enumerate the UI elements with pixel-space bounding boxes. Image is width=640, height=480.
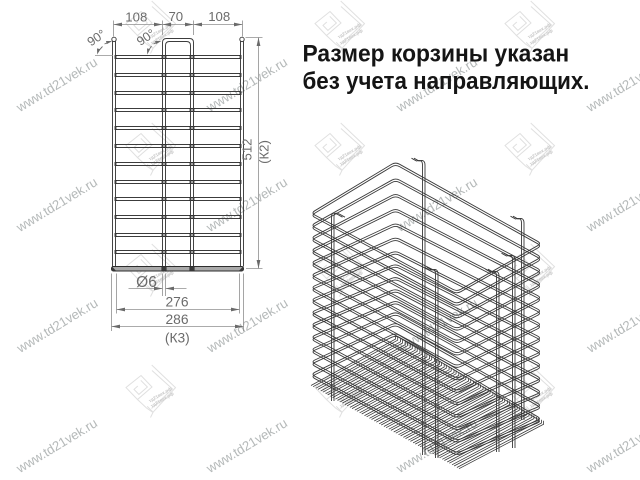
svg-text:www.td21vek.ru: www.td21vek.ru <box>583 54 640 115</box>
svg-text:www.td21vek.ru: www.td21vek.ru <box>13 415 100 476</box>
svg-text:286: 286 <box>165 312 188 327</box>
svg-text:www.td21vek.ru: www.td21vek.ru <box>583 295 640 356</box>
svg-text:www.td21vek.ru: www.td21vek.ru <box>583 415 640 476</box>
svg-text:108: 108 <box>208 9 230 24</box>
svg-text:90°: 90° <box>85 27 109 49</box>
svg-text:Ø6: Ø6 <box>136 274 157 291</box>
svg-text:276: 276 <box>165 295 188 310</box>
svg-text:108: 108 <box>125 9 147 24</box>
svg-text:512: 512 <box>240 138 255 160</box>
svg-text:www.td21vek.ru: www.td21vek.ru <box>203 415 290 476</box>
svg-text:www.td21vek.ru: www.td21vek.ru <box>13 174 100 235</box>
svg-text:www.td21vek.ru: www.td21vek.ru <box>203 54 290 115</box>
svg-text:без учета направляющих.: без учета направляющих. <box>303 68 590 95</box>
svg-text:www.td21vek.ru: www.td21vek.ru <box>203 295 290 356</box>
svg-text:www.td21vek.ru: www.td21vek.ru <box>13 295 100 356</box>
svg-text:www.td21vek.ru: www.td21vek.ru <box>393 415 480 476</box>
svg-text:(К3): (К3) <box>165 330 190 345</box>
svg-text:www.td21vek.ru: www.td21vek.ru <box>583 174 640 235</box>
svg-text:www.td21vek.ru: www.td21vek.ru <box>13 54 100 115</box>
svg-text:70: 70 <box>168 9 183 24</box>
svg-text:(К2): (К2) <box>257 140 272 164</box>
svg-text:Размер корзины указан: Размер корзины указан <box>303 41 570 68</box>
